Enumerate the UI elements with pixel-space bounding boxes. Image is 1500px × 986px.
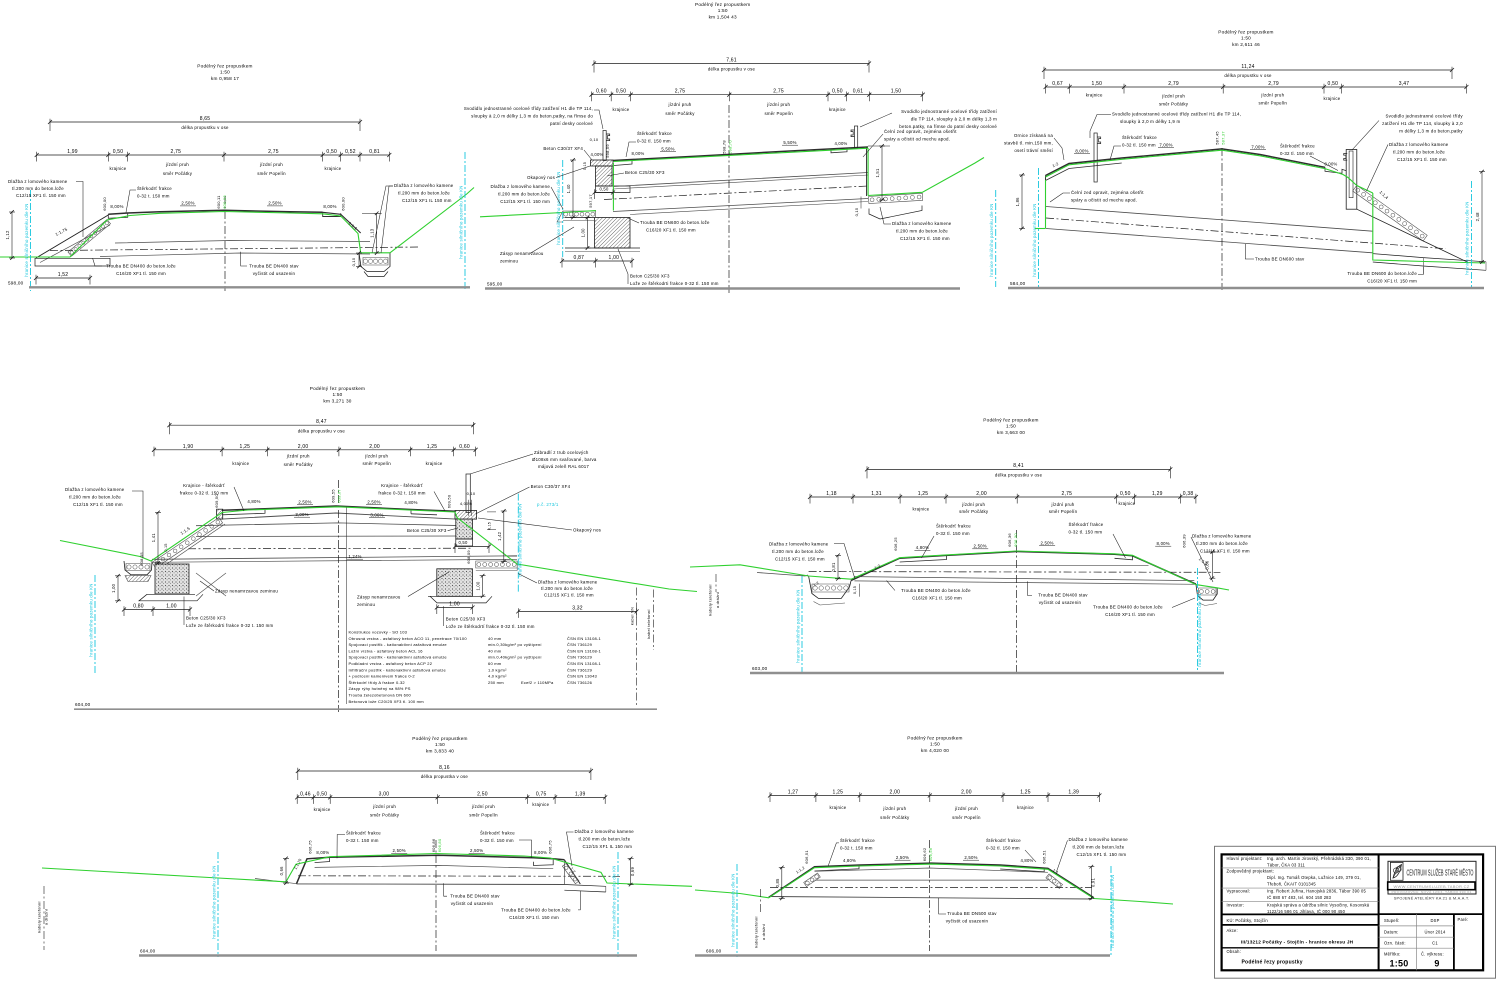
- svg-text:8,16: 8,16: [439, 765, 450, 771]
- svg-text:0,50: 0,50: [616, 89, 627, 95]
- svg-text:1,50: 1,50: [891, 89, 902, 95]
- svg-text:C12/15 XF1 tl. 150 mm: C12/15 XF1 tl. 150 mm: [1397, 157, 1447, 162]
- svg-text:tl.200 mm do beton.lože: tl.200 mm do beton.lože: [398, 191, 450, 196]
- svg-text:hranice silničního pozemku dle: hranice silničního pozemku dle KN: [730, 873, 735, 946]
- svg-text:Svodidlo jednostranné ocelové: Svodidlo jednostranné ocelové třídy zatí…: [464, 106, 593, 111]
- svg-text:606,75: 606,75: [548, 840, 553, 854]
- svg-text:598,00: 598,00: [8, 280, 24, 285]
- svg-text:0,15: 0,15: [488, 522, 492, 530]
- svg-text:délka propustku v ose: délka propustku v ose: [181, 125, 229, 130]
- svg-text:Infiltrační postřik - kationak: Infiltrační postřik - kationaktivní asfa…: [349, 667, 447, 672]
- svg-text:0,50: 0,50: [599, 187, 608, 192]
- svg-text:1,12: 1,12: [5, 230, 10, 239]
- svg-text:tl.200 mm do beton.lože: tl.200 mm do beton.lože: [579, 837, 631, 842]
- svg-text:Štěrkodrť frakce: Štěrkodrť frakce: [936, 524, 971, 529]
- svg-text:Štěrkodrť frakce: Štěrkodrť frakce: [480, 830, 515, 835]
- svg-text:m délky 1,3 m do beton.patky: m délky 1,3 m do beton.patky: [1399, 129, 1463, 134]
- svg-text:8,00%: 8,00%: [1325, 162, 1338, 167]
- svg-text:0,38: 0,38: [1183, 491, 1194, 497]
- svg-text:Spojovací postřik - kationakti: Spojovací postřik - kationaktivní asfalt…: [349, 642, 448, 647]
- svg-text:587,37: 587,37: [1221, 131, 1226, 145]
- svg-text:2,50%: 2,50%: [470, 848, 483, 853]
- svg-text:sloupky à 2,0 m délky 1,9 m: sloupky à 2,0 m délky 1,9 m: [1120, 119, 1180, 124]
- svg-text:Dlažba z lomového kamene: Dlažba z lomového kamene: [1389, 142, 1449, 147]
- svg-text:3,47: 3,47: [1399, 81, 1410, 87]
- svg-text:tl.200 mm do beton.lože: tl.200 mm do beton.lože: [12, 186, 64, 191]
- svg-text:směr Počátky: směr Počátky: [284, 462, 314, 467]
- svg-text:C12/15 XF1 tl. 150 mm: C12/15 XF1 tl. 150 mm: [544, 593, 594, 598]
- svg-text:2,00: 2,00: [961, 790, 972, 796]
- svg-text:hranice silničního pozemku dle: hranice silničního pozemku dle KN: [211, 865, 216, 938]
- svg-text:Podélný řez propustkem: Podélný řez propustkem: [1218, 30, 1273, 35]
- svg-text:0-32 tl. 150 mm: 0-32 tl. 150 mm: [1280, 151, 1314, 156]
- svg-text:Spojovací postřik - kationakti: Spojovací postřik - kationaktivní asfalt…: [349, 655, 448, 660]
- svg-text:C12/15 XF1 IL 150 mm: C12/15 XF1 IL 150 mm: [402, 198, 452, 203]
- svg-text:1122/16 586 01 Jihlava, IČ 000: 1122/16 586 01 Jihlava, IČ 000 90 450: [1267, 909, 1346, 914]
- svg-text:587,45: 587,45: [1215, 131, 1220, 145]
- svg-text:ČSN EN 13108-1: ČSN EN 13108-1: [567, 648, 602, 653]
- svg-text:C12/15 XF1 tl. 150 mm: C12/15 XF1 tl. 150 mm: [73, 502, 123, 507]
- svg-text:C1: C1: [1432, 941, 1438, 946]
- svg-text:2,50%: 2,50%: [367, 499, 380, 504]
- svg-text:Podélné řezy propustky: Podélné řezy propustky: [1242, 959, 1303, 965]
- svg-text:1,99: 1,99: [67, 149, 78, 155]
- svg-text:Ornice získaná na: Ornice získaná na: [1014, 133, 1053, 138]
- svg-text:C16/20 XF1 tl. 150 mm: C16/20 XF1 tl. 150 mm: [509, 915, 559, 920]
- svg-text:Dlažba z lomového kamene: Dlažba z lomového kamene: [575, 829, 635, 834]
- svg-text:Trouba BE DN600 stav: Trouba BE DN600 stav: [1255, 257, 1305, 262]
- svg-text:8,00%: 8,00%: [316, 850, 329, 855]
- svg-text:Štěrkodrť frakce: Štěrkodrť frakce: [346, 830, 381, 835]
- svg-text:1,00: 1,00: [608, 255, 619, 261]
- svg-text:8,00%: 8,00%: [1157, 541, 1170, 546]
- svg-text:jízdní pruh: jízdní pruh: [471, 804, 495, 809]
- svg-text:4,80%: 4,80%: [843, 858, 856, 863]
- svg-text:km 1,504 43: km 1,504 43: [709, 14, 737, 19]
- svg-text:Štěrkodrť frakce: Štěrkodrť frakce: [986, 838, 1021, 843]
- svg-text:584,00: 584,00: [1010, 281, 1026, 286]
- svg-text:Ozn. části:: Ozn. části:: [1384, 941, 1406, 946]
- svg-text:606,80: 606,80: [437, 838, 442, 852]
- svg-text:krajnice: krajnice: [613, 107, 630, 112]
- svg-text:0,10: 0,10: [590, 137, 599, 142]
- svg-text:Betonová lože C20/25 XF3 tl. 1: Betonová lože C20/25 XF3 tl. 100 mm: [349, 699, 425, 704]
- svg-text:jízdní pruh: jízdní pruh: [165, 162, 189, 167]
- svg-text:délka propustku v ose: délka propustku v ose: [708, 67, 756, 72]
- svg-text:2,75: 2,75: [1061, 491, 1072, 497]
- svg-text:0,61: 0,61: [853, 89, 864, 95]
- svg-text:Konstrukce vozovky - SO 103: Konstrukce vozovky - SO 103: [349, 630, 408, 635]
- svg-text:598,70: 598,70: [728, 140, 733, 154]
- svg-text:40 mm: 40 mm: [488, 636, 502, 641]
- svg-text:606,51: 606,51: [804, 850, 809, 864]
- svg-text:606,56: 606,56: [928, 847, 933, 861]
- svg-text:2,48: 2,48: [1475, 212, 1480, 221]
- svg-text:km 2,611 46: km 2,611 46: [1232, 42, 1260, 47]
- svg-text:směr Počátky: směr Počátky: [1159, 101, 1189, 106]
- svg-text:606,86: 606,86: [431, 838, 436, 852]
- svg-text:1,00: 1,00: [166, 604, 177, 610]
- svg-text:Zábradlí z trub ocelových: Zábradlí z trub ocelových: [534, 450, 589, 455]
- svg-text:kabel telefonní: kabel telefonní: [646, 609, 651, 639]
- svg-text:ČSN EN 13043: ČSN EN 13043: [567, 674, 598, 679]
- svg-text:SPOJENÉ ATELIÉRY KA 21 & M.A.A: SPOJENÉ ATELIÉRY KA 21 & M.A.A.T.: [1394, 896, 1470, 901]
- svg-text:krajnice: krajnice: [829, 107, 846, 112]
- svg-text:Č. výkresu:: Č. výkresu:: [1421, 952, 1444, 957]
- svg-text:604,00: 604,00: [75, 702, 91, 707]
- svg-text:délka propustku v ose: délka propustku v ose: [995, 473, 1043, 478]
- svg-text:0,50: 0,50: [1327, 81, 1338, 87]
- svg-text:vyčistit od usazenin: vyčistit od usazenin: [253, 271, 296, 276]
- svg-text:0,15: 0,15: [351, 257, 356, 266]
- svg-text:0,60: 0,60: [459, 444, 470, 450]
- svg-text:Trouba BE DN400 do beton.lože: Trouba BE DN400 do beton.lože: [1093, 605, 1163, 610]
- svg-text:1:50: 1:50: [435, 742, 445, 747]
- svg-text:Beton C25/30 XF3: Beton C25/30 XF3: [407, 528, 447, 533]
- svg-text:Lože ze štěrkodrti frakce 0-32: Lože ze štěrkodrti frakce 0-32 tl. 150 m…: [630, 281, 719, 286]
- svg-text:598,59: 598,59: [605, 144, 610, 158]
- svg-text:1,51: 1,51: [875, 168, 880, 177]
- svg-text:0,91: 0,91: [1091, 878, 1096, 887]
- svg-text:směr Počátky: směr Počátky: [665, 111, 695, 116]
- svg-text:1,24%: 1,24%: [348, 554, 361, 559]
- svg-text:směr Počátky: směr Počátky: [370, 813, 400, 818]
- svg-text:krajnice: krajnice: [232, 461, 249, 466]
- svg-text:spáry a očistit od mechu apod.: spáry a očistit od mechu apod.: [884, 137, 950, 142]
- svg-text:Podélný řez propustkem: Podélný řez propustkem: [197, 64, 252, 69]
- svg-text:C16/20 XF1 tl. 150 mm: C16/20 XF1 tl. 150 mm: [912, 596, 962, 601]
- svg-text:a drážní: a drážní: [44, 908, 49, 925]
- svg-text:osetí trávní směsí: osetí trávní směsí: [1014, 148, 1053, 153]
- svg-text:tl.200 mm do beton.lože: tl.200 mm do beton.lože: [498, 192, 550, 197]
- svg-text:603,00: 603,00: [752, 666, 768, 671]
- svg-text:0,60: 0,60: [596, 89, 607, 95]
- svg-text:tl.200 mm do beton.lože: tl.200 mm do beton.lože: [1196, 541, 1248, 546]
- svg-text:Obrusná vrstva - asfaltový bet: Obrusná vrstva - asfaltový beton ACO 11,…: [349, 636, 468, 641]
- svg-text:CENTRUM SLUŽEB STARÉ MĚSTO: CENTRUM SLUŽEB STARÉ MĚSTO: [1407, 868, 1474, 878]
- svg-text:606,39: 606,39: [1181, 534, 1186, 548]
- svg-text:C12/15 XF1 tl. 150 mm: C12/15 XF1 tl. 150 mm: [500, 199, 550, 204]
- svg-text:krajnice: krajnice: [1086, 93, 1103, 98]
- svg-text:606,30: 606,30: [1013, 533, 1018, 547]
- svg-text:0,10: 0,10: [467, 491, 476, 496]
- svg-text:Beton C25/30 XF3: Beton C25/30 XF3: [625, 170, 665, 175]
- svg-text:8,00%: 8,00%: [323, 204, 336, 209]
- svg-text:Beton C25/30 XF3: Beton C25/30 XF3: [630, 274, 670, 279]
- svg-text:7,00%: 7,00%: [1251, 145, 1264, 150]
- svg-text:tl.200 mm do beton.lože: tl.200 mm do beton.lože: [1393, 150, 1445, 155]
- svg-text:směr Popelín: směr Popelín: [469, 813, 498, 818]
- svg-text:0-32 tl. 150 mm: 0-32 tl. 150 mm: [637, 139, 671, 144]
- svg-text:0,87: 0,87: [573, 255, 584, 261]
- svg-text:0,50: 0,50: [113, 149, 124, 155]
- svg-text:Svodidlo jednostranné ocelové: Svodidlo jednostranné ocelové třídy zatí…: [1112, 112, 1241, 117]
- svg-text:600,00: 600,00: [102, 197, 107, 211]
- svg-text:Lože ze štěrkodrtí frakce 0-32: Lože ze štěrkodrtí frakce 0-32 tl. 150 m…: [446, 624, 535, 629]
- svg-text:III/13212 Počátky - Stojčín -: III/13212 Počátky - Stojčín - hranice ok…: [1241, 939, 1354, 944]
- svg-text:jízdní pruh: jízdní pruh: [668, 102, 692, 107]
- svg-text:hranice silničního pozemku dle: hranice silničního pozemku dle KN: [1464, 201, 1469, 274]
- svg-text:8,41: 8,41: [1013, 463, 1024, 469]
- svg-text:1,52: 1,52: [58, 272, 69, 278]
- svg-text:Stupeň:: Stupeň:: [1384, 918, 1400, 923]
- svg-text:vyčistit od usazenin: vyčistit od usazenin: [451, 901, 494, 906]
- svg-text:Krajská správa a údržba silnic: Krajská správa a údržba silnic Vysočiny,…: [1267, 903, 1370, 908]
- svg-text:Podélný řez propustkem: Podélný řez propustkem: [412, 736, 467, 741]
- svg-text:Okapový nos: Okapový nos: [573, 528, 602, 533]
- svg-text:krajnice: krajnice: [1324, 96, 1341, 101]
- svg-text:1,86: 1,86: [1015, 197, 1020, 206]
- svg-text:hranice silničního pozemku dle: hranice silničního pozemku dle KN: [556, 171, 561, 244]
- svg-text:patní desky ocelové: patní desky ocelové: [550, 121, 593, 126]
- svg-text:1,40: 1,40: [566, 184, 571, 193]
- svg-text:0,80: 0,80: [133, 604, 144, 610]
- svg-text:Trouba BE DN400 stav: Trouba BE DN400 stav: [1038, 593, 1088, 598]
- svg-text:606,75: 606,75: [308, 840, 313, 854]
- svg-text:3,00%: 3,00%: [295, 512, 308, 517]
- svg-text:Zásyp nenamrzavou: Zásyp nenamrzavou: [357, 595, 401, 600]
- svg-text:4,80%: 4,80%: [247, 499, 260, 504]
- svg-text:stavbě tl. min.150 mm,: stavbě tl. min.150 mm,: [1004, 141, 1053, 146]
- svg-text:a drážní: a drážní: [761, 923, 766, 940]
- svg-text:májová zeleň RAL 6017: májová zeleň RAL 6017: [538, 464, 589, 469]
- svg-text:Zásyp rýhy hutněný na 98% PS: Zásyp rýhy hutněný na 98% PS: [349, 686, 411, 691]
- svg-text:1,42: 1,42: [497, 531, 502, 540]
- svg-text:Dlažba z lomového kamene: Dlažba z lomového kamene: [538, 580, 598, 585]
- svg-text:Čelní zed opravit, zejména oše: Čelní zed opravit, zejména ošetřit: [884, 129, 957, 134]
- svg-text:Zodpovědný projektant:: Zodpovědný projektant:: [1227, 869, 1275, 874]
- svg-text:Akce:: Akce:: [1227, 928, 1238, 933]
- svg-text:Beton C25/30 XF3: Beton C25/30 XF3: [446, 617, 486, 622]
- svg-text:4,80%: 4,80%: [404, 500, 417, 505]
- svg-text:jízdní pruh: jízdní pruh: [286, 454, 310, 459]
- svg-text:Štěrkodrť frakce: Štěrkodrť frakce: [1280, 144, 1315, 149]
- svg-text:vyčistit od usazenin: vyčistit od usazenin: [1039, 600, 1082, 605]
- svg-text:Trouba BE DN600 do beton.lože: Trouba BE DN600 do beton.lože: [640, 220, 710, 225]
- svg-text:0-32 tl. 150 mm: 0-32 tl. 150 mm: [1069, 530, 1103, 535]
- svg-text:frakce 0-32 tl. 150 mm: frakce 0-32 tl. 150 mm: [180, 491, 229, 496]
- svg-text:Čelní zed opravit, zejména oše: Čelní zed opravit, zejména ošetřit: [1071, 190, 1144, 195]
- svg-text:0,75: 0,75: [536, 791, 547, 797]
- svg-text:IČ 880 67 483, tel. 604 150 28: IČ 880 67 483, tel. 604 150 283: [1267, 895, 1332, 900]
- svg-text:Krajnice - štěrkodrť: Krajnice - štěrkodrť: [381, 483, 423, 488]
- svg-text:0,50: 0,50: [1120, 491, 1131, 497]
- svg-text:1,39: 1,39: [575, 791, 586, 797]
- svg-text:ČSN 736129: ČSN 736129: [567, 642, 593, 647]
- svg-text:hranice silničního pozemku dle: hranice silničního pozemku dle KN: [611, 865, 616, 938]
- svg-text:Dlažba z lomového kamene: Dlažba z lomového kamene: [769, 542, 829, 547]
- svg-text:KÚ: Počátky, Stojčín: KÚ: Počátky, Stojčín: [1227, 918, 1269, 923]
- svg-text:Trouba BE DN400 do beton.lože: Trouba BE DN400 do beton.lože: [901, 588, 971, 593]
- svg-text:598,78: 598,78: [722, 140, 727, 154]
- svg-text:2,00: 2,00: [298, 444, 309, 450]
- svg-text:1:50: 1:50: [332, 392, 342, 397]
- svg-text:krajnice: krajnice: [314, 807, 331, 812]
- svg-text:krajnice: krajnice: [325, 166, 342, 171]
- svg-text:2,75: 2,75: [268, 149, 279, 155]
- svg-text:0,15: 0,15: [854, 207, 859, 216]
- svg-text:zeminou: zeminou: [357, 602, 375, 607]
- svg-text:jízdní pruh: jízdní pruh: [954, 806, 978, 811]
- svg-text:250 mm: 250 mm: [488, 680, 504, 685]
- svg-text:min.0,30kg/m² po vyštípení: min.0,30kg/m² po vyštípení: [488, 642, 542, 647]
- svg-text:krajnice: krajnice: [1119, 501, 1136, 506]
- svg-text:2,00: 2,00: [889, 790, 900, 796]
- svg-text:Dlažba z lomového kamene: Dlažba z lomového kamene: [491, 184, 551, 189]
- svg-text:Beton C25/30 XF3: Beton C25/30 XF3: [186, 616, 226, 621]
- svg-text:Štěrkodrť frakce: Štěrkodrť frakce: [637, 131, 672, 136]
- svg-text:Ing. arch. Martin Jirovský, Př: Ing. arch. Martin Jirovský, Přehrádská 3…: [1267, 856, 1371, 861]
- svg-text:hranice silničního pozemku dle: hranice silničního pozemku dle KN: [1032, 203, 1037, 276]
- svg-text:Obsah:: Obsah:: [1227, 949, 1242, 954]
- svg-text:4,00%: 4,00%: [835, 141, 848, 146]
- svg-text:2,50%: 2,50%: [268, 201, 281, 206]
- svg-text:600,03: 600,03: [222, 195, 227, 209]
- svg-text:Dipl. Ing. Tomáš Otepka, Lužni: Dipl. Ing. Tomáš Otepka, Lužnice 149, 37…: [1267, 875, 1361, 880]
- svg-text:jízdní pruh: jízdní pruh: [364, 454, 388, 459]
- svg-text:tl.200 mm do beton.lože: tl.200 mm do beton.lože: [541, 586, 593, 591]
- svg-text:min.0,40kg/m² po vyštípení: min.0,40kg/m² po vyštípení: [488, 655, 542, 660]
- svg-text:0-32 tl. 150 mm: 0-32 tl. 150 mm: [1122, 143, 1156, 148]
- svg-text:Vypracoval:: Vypracoval:: [1227, 889, 1251, 894]
- svg-text:C12/15 XF1 tl. 150 mm: C12/15 XF1 tl. 150 mm: [1200, 549, 1250, 554]
- svg-text:jízdní pruh: jízdní pruh: [1260, 93, 1284, 98]
- svg-text:0-32 tl. 150 mm: 0-32 tl. 150 mm: [936, 531, 970, 536]
- svg-text:0-32 t. 150 mm: 0-32 t. 150 mm: [840, 846, 873, 851]
- svg-text:4,00%: 4,00%: [591, 152, 604, 157]
- svg-text:1,41: 1,41: [151, 533, 156, 542]
- svg-text:0,50: 0,50: [458, 540, 467, 545]
- svg-text:595,00: 595,00: [487, 282, 503, 287]
- svg-text:Podélný řez propustkem: Podélný řez propustkem: [907, 736, 962, 741]
- svg-text:hranice silničního pozemku dle: hranice silničního pozemku dle KN: [1197, 593, 1202, 666]
- svg-text:směr Počátky: směr Počátky: [163, 171, 193, 176]
- svg-text:9: 9: [1434, 959, 1439, 969]
- svg-text:8,00%: 8,00%: [534, 850, 547, 855]
- svg-text:Ložní vrstva - asfaltový beton: Ložní vrstva - asfaltový beton ACL 16: [349, 648, 424, 653]
- svg-text:Štěrkodrť frakce: Štěrkodrť frakce: [840, 838, 875, 843]
- svg-text:2,50%: 2,50%: [298, 499, 311, 504]
- svg-text:40 mm: 40 mm: [488, 648, 502, 653]
- svg-text:2,50: 2,50: [477, 791, 488, 797]
- svg-text:Trouba BE DN400 do beton.lože: Trouba BE DN400 do beton.lože: [106, 263, 176, 268]
- svg-text:kabely telefonní: kabely telefonní: [37, 901, 42, 933]
- svg-text:1,25: 1,25: [239, 444, 250, 450]
- svg-text:Štěrkodrť třídy A frakce 0-32: Štěrkodrť třídy A frakce 0-32: [349, 680, 406, 685]
- svg-text:C12/15 XF1 IL 150 mm: C12/15 XF1 IL 150 mm: [583, 844, 633, 849]
- svg-text:1,0 kg/m²: 1,0 kg/m²: [488, 667, 507, 672]
- svg-text:Trouba BE DN500 stav: Trouba BE DN500 stav: [947, 911, 997, 916]
- svg-text:ČSN 736129: ČSN 736129: [567, 655, 593, 660]
- svg-text:1,31: 1,31: [871, 491, 882, 497]
- svg-text:606,36: 606,36: [1007, 533, 1012, 547]
- svg-text:+ podrcení kamenivem frakce 0-: + podrcení kamenivem frakce 0-2: [349, 674, 416, 679]
- svg-text:Lože ze štěrkodrti frakce 0-32: Lože ze štěrkodrti frakce 0-32 t. 150 mm: [186, 623, 273, 628]
- svg-text:Dlažba z lomového kamene: Dlažba z lomového kamene: [1192, 534, 1252, 539]
- svg-text:1,29: 1,29: [1152, 491, 1163, 497]
- svg-text:a drážní: a drážní: [715, 591, 720, 608]
- svg-text:0,66: 0,66: [279, 866, 284, 875]
- svg-text:DSP: DSP: [1430, 918, 1439, 923]
- svg-text:606,25: 606,25: [893, 537, 898, 551]
- svg-text:8,65: 8,65: [200, 116, 211, 122]
- svg-text:jízdní pruh: jízdní pruh: [259, 162, 283, 167]
- svg-text:606,51: 606,51: [1042, 850, 1047, 864]
- svg-text:Okapový nos: Okapový nos: [527, 175, 556, 180]
- svg-text:Zásyp nenamrzavou zeminou: Zásyp nenamrzavou zeminou: [215, 589, 278, 594]
- svg-text:4,00%: 4,00%: [460, 501, 472, 506]
- svg-text:1,25: 1,25: [918, 491, 929, 497]
- svg-text:C12/15 XF1 tl. 150 mm: C12/15 XF1 tl. 150 mm: [775, 557, 825, 562]
- svg-text:hranice silničního pozemku dle: hranice silničního pozemku dle KN: [518, 503, 523, 576]
- svg-text:kabel NN: kabel NN: [630, 607, 635, 625]
- svg-text:609,55: 609,55: [331, 489, 336, 503]
- svg-text:2,50%: 2,50%: [393, 848, 406, 853]
- svg-text:krajnice: krajnice: [110, 166, 127, 171]
- svg-text:8,47: 8,47: [316, 419, 327, 425]
- svg-text:7,61: 7,61: [726, 57, 737, 63]
- svg-text:C16/20 XF1 tl. 150 mm: C16/20 XF1 tl. 150 mm: [1105, 612, 1155, 617]
- svg-text:1:50: 1:50: [1390, 959, 1409, 969]
- svg-text:km 3,833 40: km 3,833 40: [426, 748, 454, 753]
- svg-text:kabely telefonní: kabely telefonní: [708, 584, 713, 616]
- svg-text:jízdní pruh: jízdní pruh: [882, 806, 906, 811]
- svg-text:1,25: 1,25: [427, 444, 438, 450]
- svg-text:spáry a očistit od mechu apod.: spáry a očistit od mechu apod.: [1071, 198, 1137, 203]
- svg-text:2,50%: 2,50%: [974, 544, 987, 549]
- svg-text:dle TP 114, sloupky à 2,0 m dé: dle TP 114, sloupky à 2,0 m délky 1,3 m: [911, 117, 997, 122]
- svg-text:Krajnice - štěrkodrť: Krajnice - štěrkodrť: [183, 483, 225, 488]
- svg-text:1,50: 1,50: [1091, 81, 1102, 87]
- svg-text:frakce 0-32 t. 150 mm: frakce 0-32 t. 150 mm: [378, 491, 425, 496]
- svg-text:PROVOZOVNA: NOVÁ 123/4, TÁBOR: PROVOZOVNA: NOVÁ 123/4, TÁBOR 390 01: [1392, 890, 1472, 894]
- svg-text:směr Popelín: směr Popelín: [362, 461, 391, 466]
- svg-text:1:50: 1:50: [930, 742, 940, 747]
- svg-text:směr Popelín: směr Popelín: [1049, 509, 1078, 514]
- svg-text:3,00: 3,00: [379, 791, 390, 797]
- svg-text:sloupky à 2,0 m délky 1,3 m do: sloupky à 2,0 m délky 1,3 m do beton.pat…: [471, 114, 593, 119]
- svg-text:1,13: 1,13: [370, 228, 375, 237]
- svg-text:jízdní pruh: jízdní pruh: [372, 804, 396, 809]
- svg-text:krajnice: krajnice: [532, 802, 549, 807]
- svg-text:ČSN EN 13108-1: ČSN EN 13108-1: [567, 636, 602, 641]
- svg-text:směr Počátky: směr Počátky: [880, 815, 910, 820]
- svg-text:2,79: 2,79: [1168, 81, 1179, 87]
- svg-text:608,09: 608,09: [466, 550, 471, 564]
- svg-text:kabely telefonní: kabely telefonní: [754, 916, 759, 948]
- svg-text:hranice silničního pozemku dle: hranice silničního pozemku dle KN: [88, 583, 93, 656]
- svg-text:Zásyp nenamrzavou: Zásyp nenamrzavou: [500, 251, 544, 256]
- svg-text:0-32 t. 150 mm: 0-32 t. 150 mm: [346, 838, 379, 843]
- svg-text:Dlažba z lomového kamene: Dlažba z lomového kamene: [1069, 837, 1129, 842]
- svg-text:WWW.CENTRUMSLUZEB.TABOR.CZ: WWW.CENTRUMSLUZEB.TABOR.CZ: [1394, 885, 1470, 889]
- svg-text:0-32 tl. 150 mm: 0-32 tl. 150 mm: [986, 846, 1020, 851]
- svg-text:8,00%: 8,00%: [632, 151, 645, 156]
- svg-text:Paré:: Paré:: [1458, 917, 1469, 922]
- svg-text:1,25: 1,25: [1020, 790, 1031, 796]
- svg-text:km 0,958 17: km 0,958 17: [211, 76, 239, 81]
- svg-text:0,46: 0,46: [300, 791, 311, 797]
- svg-text:hranice silničního pozemku dle: hranice silničního pozemku dle KN: [1110, 874, 1115, 947]
- svg-text:Měřítko:: Měřítko:: [1384, 952, 1401, 957]
- svg-text:Trouba BE DN400 stav: Trouba BE DN400 stav: [450, 894, 500, 899]
- svg-text:8,00%: 8,00%: [1075, 149, 1088, 154]
- svg-text:Beton C30/37 XF4: Beton C30/37 XF4: [543, 146, 583, 151]
- svg-text:606,00: 606,00: [706, 949, 722, 954]
- svg-text:C16/20 XF1 tl. 150 mm: C16/20 XF1 tl. 150 mm: [116, 271, 166, 276]
- svg-text:609,50: 609,50: [447, 494, 452, 508]
- svg-text:směr Popelín: směr Popelín: [764, 111, 793, 116]
